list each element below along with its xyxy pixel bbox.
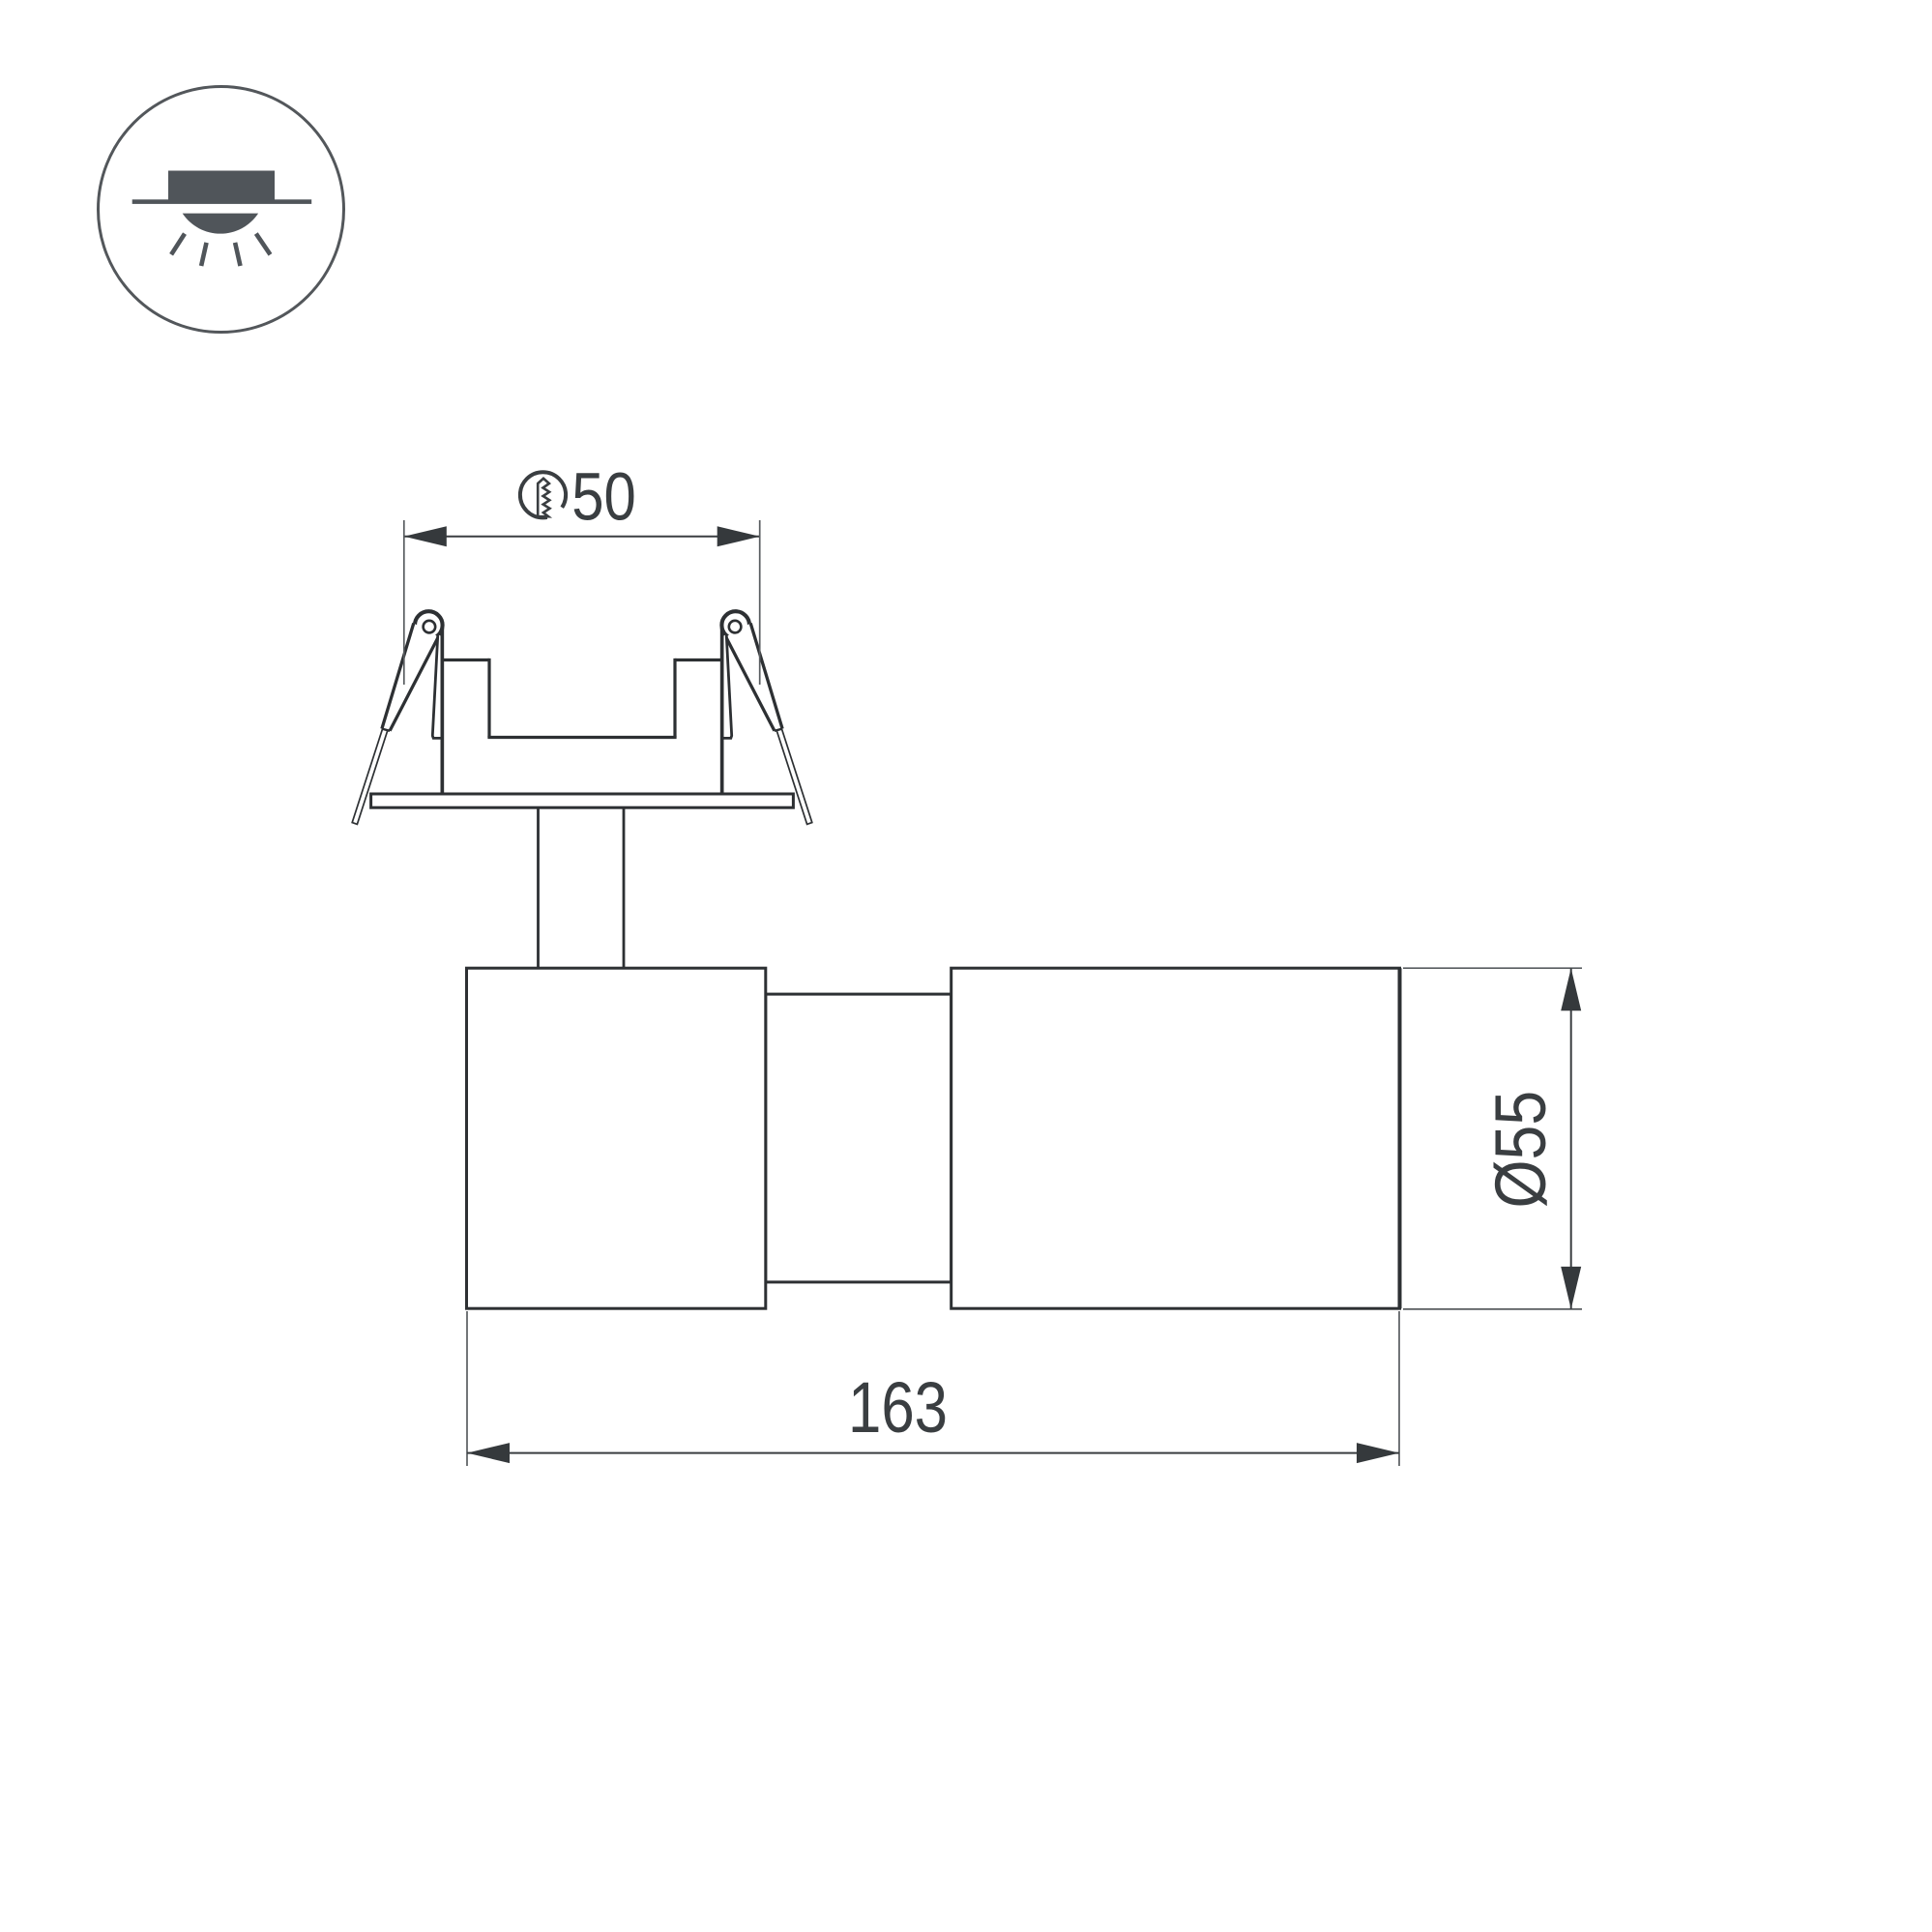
svg-text:163: 163 — [848, 1368, 948, 1449]
svg-text:50: 50 — [571, 458, 636, 534]
svg-text:Ø55: Ø55 — [1480, 1091, 1561, 1209]
